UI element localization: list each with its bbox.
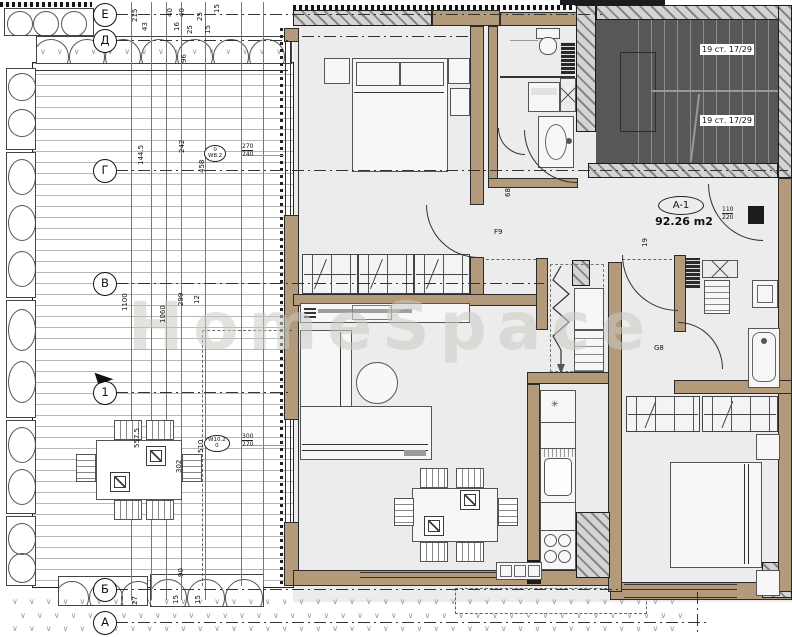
seat-marker [110,472,130,492]
window-tag-dims: 300270 [242,433,253,448]
dimension-label: 15 [205,25,212,34]
dimension-label: 15 [173,595,180,604]
terrace-table [96,440,182,500]
dimension-label: 510 [198,440,205,453]
dimension-label: 12 [194,295,201,304]
ground-pattern: ∨∨∨∨∨∨∨∨∨∨∨∨∨∨∨∨∨∨∨∨∨∨∨∨∨∨∨∨∨∨∨∨∨∨∨∨∨∨∨∨ [20,612,780,620]
grid-line-G [116,170,788,171]
chair [498,498,518,526]
chair [146,420,174,440]
toilet-line [510,40,538,41]
grid-line-D [116,40,292,41]
nightstand [756,570,780,596]
dimension-label: 15 [214,4,221,13]
headboard-line [744,464,745,564]
stair-label: 19 ст. 17/29 [700,44,754,55]
closet-south-wall [527,372,620,384]
planter [4,8,94,36]
chair [146,500,174,520]
nightstand [448,58,470,84]
washer-tag [531,88,557,95]
window-tag-w10-2: W10.20 [204,435,230,452]
deck-dashed-edge [202,330,203,586]
window-w10-2 [285,420,299,522]
dimension-label: F9 [494,229,502,236]
sofa-line [302,444,428,445]
toilet-inner [757,285,773,303]
kitchen-counter [540,422,576,450]
side-table [450,88,470,116]
cabinet-door [514,565,526,577]
window-tag-dims: 270240 [242,143,253,158]
dimension-label: 90 [178,568,185,577]
seat-marker [460,490,480,510]
bathroom1-west-wall [488,26,498,186]
deck-inner-edge [36,70,288,71]
shower-column [560,78,576,112]
window-south-bedroom [624,584,737,598]
chair [114,500,142,520]
pillow [356,62,400,86]
grid-line-1 [116,392,292,393]
watermark: HomeSpace [128,288,655,365]
shaft-grate [561,42,575,74]
grid-bubble-E: Е [93,3,117,27]
dimension-label: 299 [178,293,185,306]
stair-wall-left [576,5,596,132]
dimension-label: 25 [197,12,204,21]
chair [394,498,414,526]
insulation-strip [293,5,575,10]
grid-bubble-D: Д [93,29,117,53]
kitchen-counter [540,502,576,532]
shaft-grate [686,258,700,288]
dimension-label: 96 [181,54,188,63]
seat-marker [424,516,444,536]
dimension-label: 40 [167,8,174,17]
dimension-label: 302 [176,460,183,473]
pillow [400,62,444,86]
planter [6,152,36,298]
chair [456,542,484,562]
grid-line-B [116,589,658,590]
threshold [486,259,536,260]
grid-bubble-G: Г [93,159,117,183]
door-tag-110-220: 110220 [722,206,733,221]
washing-machine [528,82,560,112]
burner [558,534,571,547]
door-tag-box [748,206,764,224]
grid-bubble-A: А [93,611,117,635]
exterior-wall-north [432,10,500,26]
dimension-label: 68 [505,188,512,197]
insulation-strip [0,2,92,7]
burner [544,534,557,547]
floor-plan: ∨∨∨∨∨∨∨∨∨∨∨∨∨∨∨∨∨∨∨∨∨∨∨∨∨∨∨∨∨∨∨∨∨∨∨∨∨∨∨∨… [0,0,792,637]
grid-line-V [116,283,544,284]
coffee-table [356,362,398,404]
dimension-label: 242 [179,140,186,153]
bedroom1-east-wall [470,26,484,205]
fridge-symbol: ✳ [551,400,559,410]
sofa-tag [404,450,426,456]
planter [6,516,36,586]
dimension-label: 16 [174,22,181,31]
wall-top-strip [560,0,665,6]
basin [545,124,567,160]
grid-bubble-V: В [93,272,117,296]
stair-wall-right [778,5,792,178]
stair-landing-line [652,90,778,92]
grid-line-A [116,622,708,623]
stair-label: 19 ст. 17/29 [700,115,754,126]
headboard-line [748,464,749,564]
cabinet-door [500,565,512,577]
curtain-line [302,36,468,37]
exterior-wall-north [293,10,432,26]
dimension-label: 40 [179,8,186,17]
stair-wall-top [596,5,792,20]
ground-pattern: ∨∨∨∨∨∨∨∨∨∨∨∨∨∨∨∨∨∨∨∨∨∨∨∨∨∨∨∨∨∨∨∨∨∨∨∨∨∨∨∨ [40,48,286,56]
burner [558,550,571,563]
dimension-label: 25 [187,25,194,34]
chair [182,454,202,482]
window-w8-2 [285,42,299,215]
dimension-label: 1060 [160,305,167,323]
wardrobe-section [702,396,778,432]
dimension-label: 19 [642,238,649,247]
dimension-label: 144.5 [138,145,145,165]
cabinet-door [528,565,540,577]
dimension-label: 1100 [122,293,129,311]
planter [6,300,36,418]
dimension-label: 458 [199,160,206,173]
dimension-label: 43 [142,22,149,31]
dimension-label: 15 [195,595,202,604]
stair-flight-outline [620,52,656,132]
ground-pattern: ∨∨∨∨∨∨∨∨∨∨∨∨∨∨∨∨∨∨∨∨∨∨∨∨∨∨∨∨∨∨∨∨∨∨∨∨∨∨∨∨ [12,625,782,633]
chair [76,454,96,482]
dimension-label: 215 [132,9,139,22]
structural-column [576,512,610,578]
kitchen-sink [544,458,572,496]
nightstand [324,58,350,84]
grid-bubble-B: Б [93,578,117,602]
planter [6,68,36,150]
nightstand [756,434,780,460]
chair [420,468,448,488]
shelf [702,260,738,278]
chair [420,542,448,562]
dimension-label: 27 [132,596,139,605]
kitchen-west-wall [527,384,540,570]
grid-line-E [116,14,602,15]
seat-marker [146,446,166,466]
dimension-label: 557.5 [134,428,141,448]
grid-bubble-1: 1 [93,381,117,405]
toilet-bowl [539,37,557,55]
washing-machine [704,280,730,314]
chair [456,468,484,488]
planter [6,420,36,514]
burner [544,550,557,563]
wardrobe-section [626,396,700,432]
dimension-label: G8 [654,345,664,352]
blanket-line [354,92,444,93]
apartment-tag: A-1 [658,196,704,215]
window-tag-w8-2: 0W8.2 [204,145,226,162]
bathtub-inner [752,332,776,382]
grid-line-vertical [697,592,698,634]
apartment-area: 92.26 m2 [652,216,716,227]
